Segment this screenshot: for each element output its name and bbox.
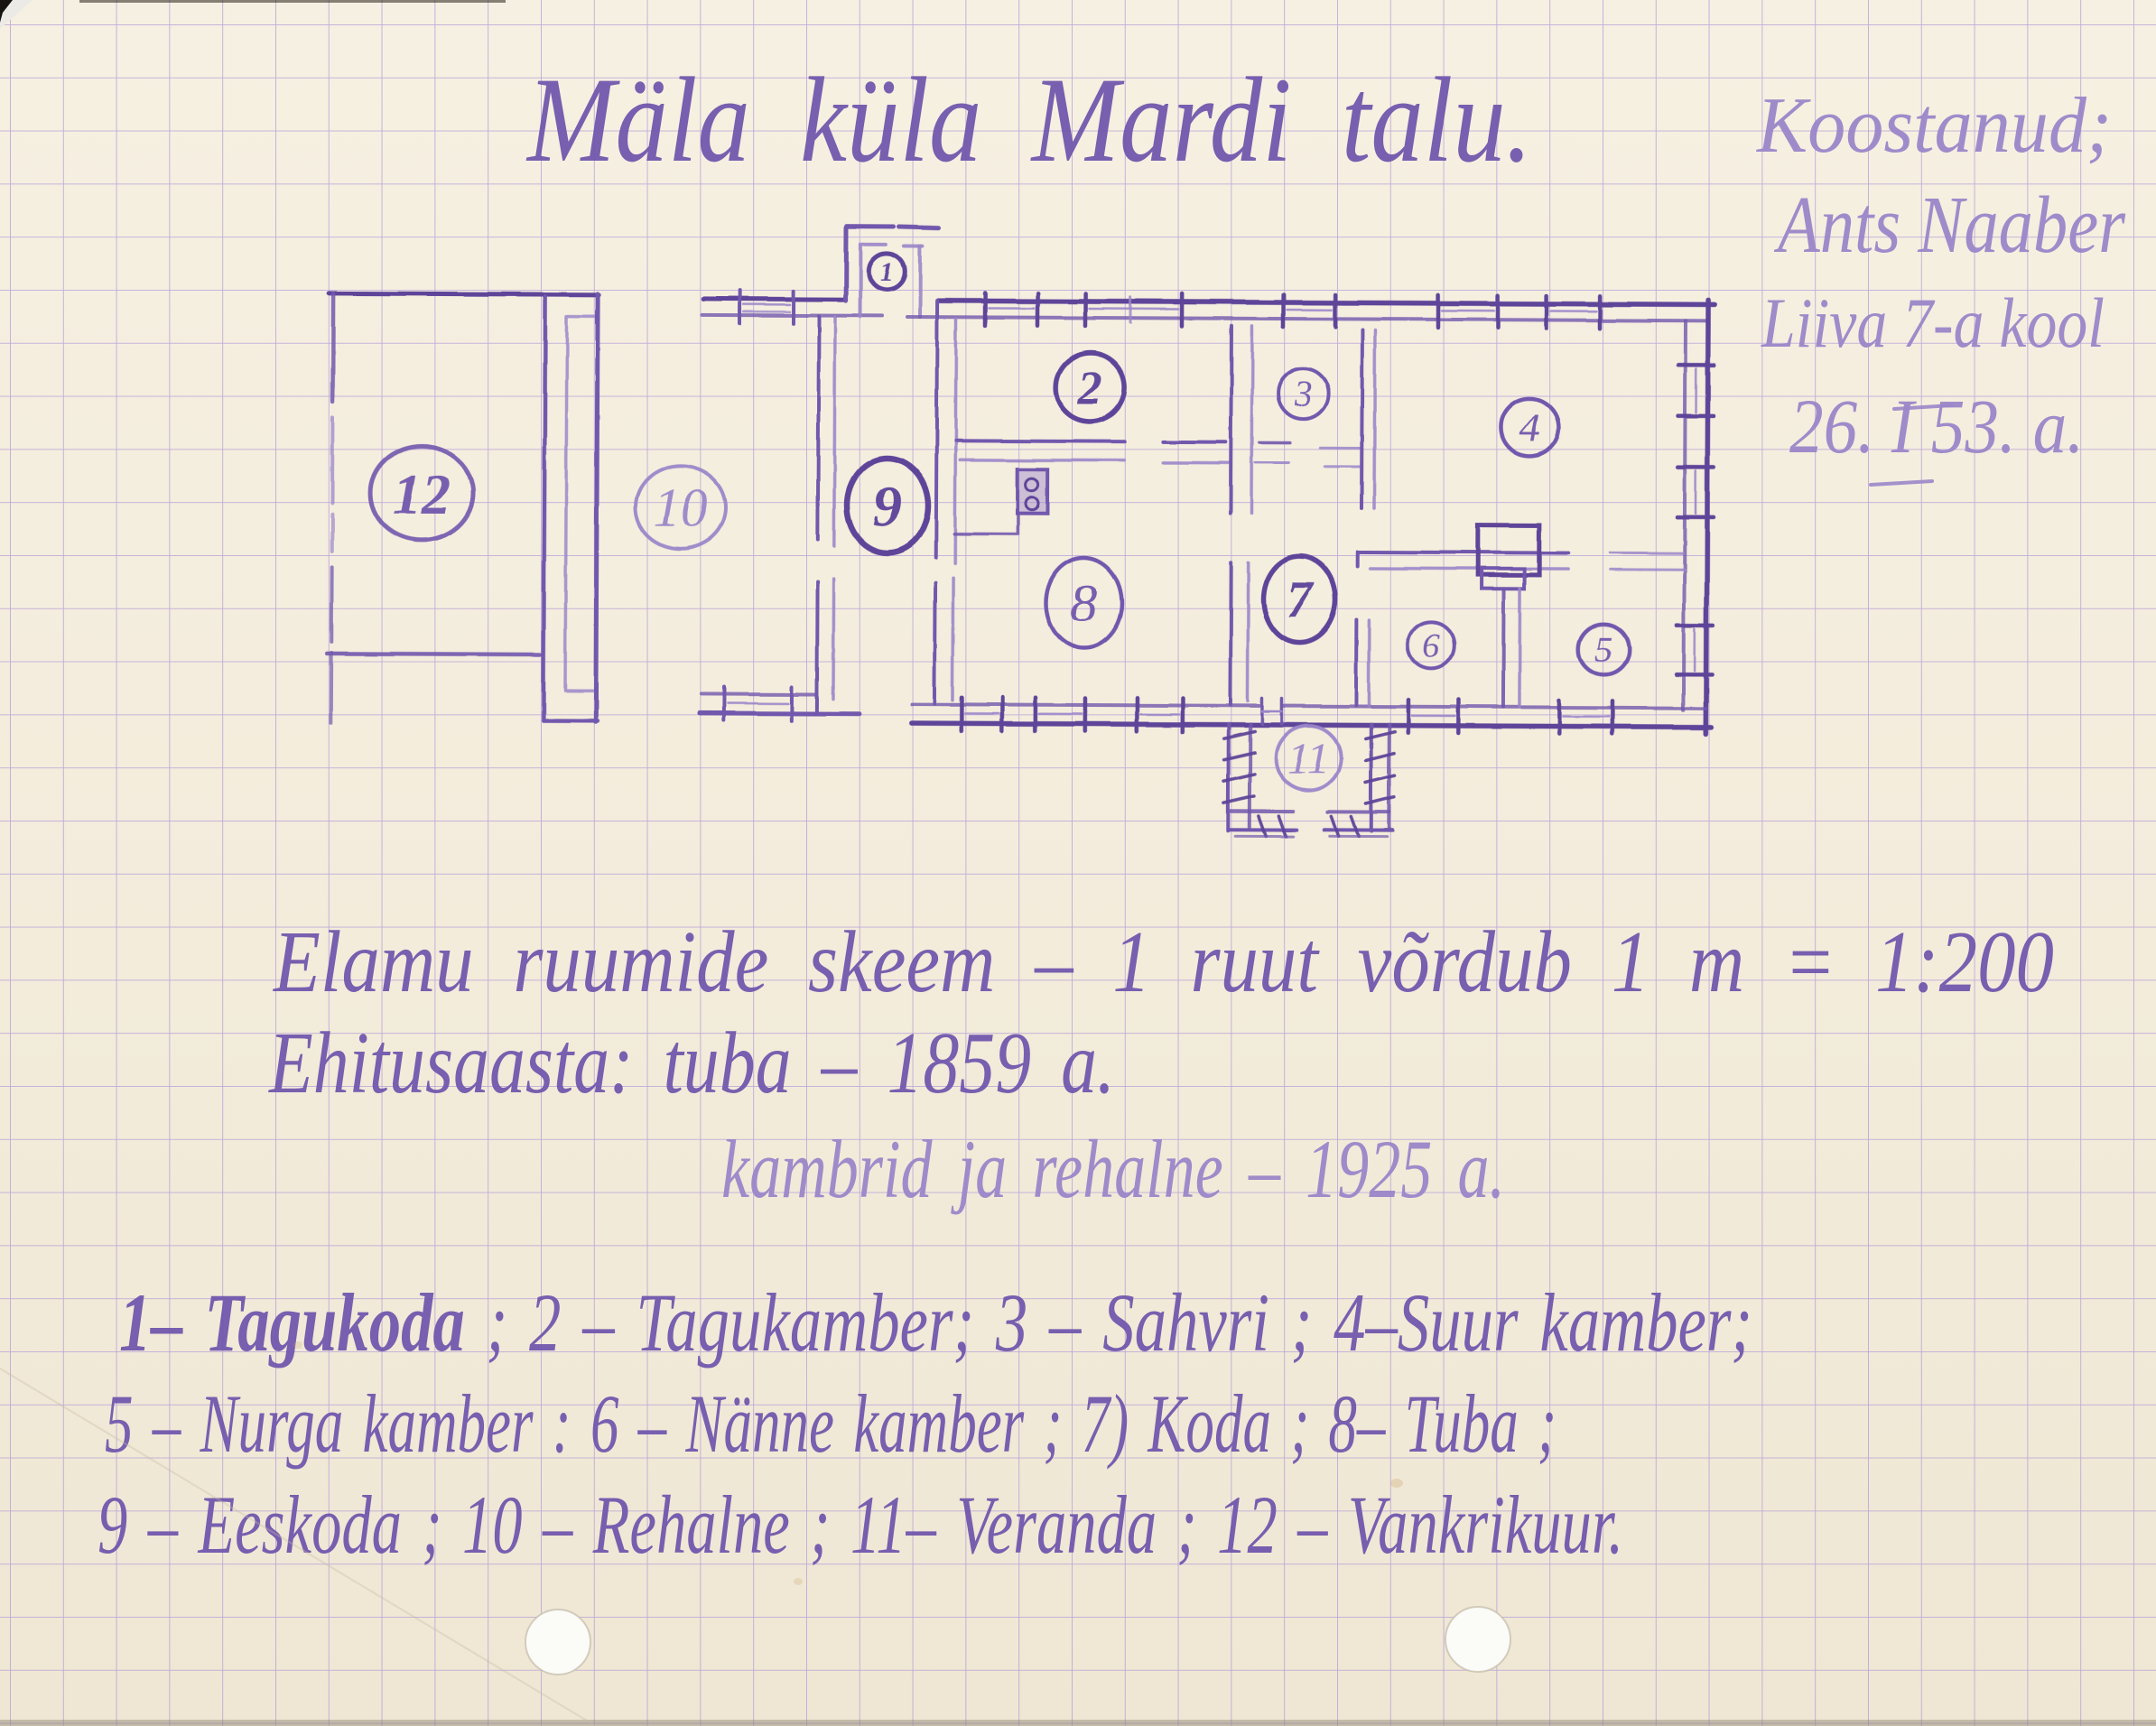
svg-text:10: 10	[654, 478, 708, 537]
svg-text:Mäla küla Mardi talu.: Mäla küla Mardi talu.	[525, 53, 1532, 188]
svg-text:1– Tagukoda ; 2 – Tagukamber;: 1– Tagukoda ; 2 – Tagukamber; 3 – Sahvri…	[119, 1276, 1752, 1369]
svg-text:8: 8	[1070, 573, 1097, 633]
svg-text:5: 5	[1594, 629, 1612, 670]
svg-text:12: 12	[393, 461, 451, 525]
svg-text:Koostanud;: Koostanud;	[1755, 82, 2112, 170]
svg-text:6: 6	[1423, 627, 1440, 665]
svg-text:Ants Naaber: Ants Naaber	[1774, 181, 2126, 270]
svg-text:Liiva 7-a kool: Liiva 7-a kool	[1761, 283, 2105, 362]
svg-text:11: 11	[1287, 733, 1330, 784]
svg-text:Ehitusaasta: tuba – 1859 a.: Ehitusaasta: tuba – 1859 a.	[267, 1015, 1115, 1112]
svg-text:1: 1	[880, 257, 894, 287]
svg-text:2: 2	[1077, 360, 1102, 414]
svg-text:Elamu ruumide skeem – 1 ruut v: Elamu ruumide skeem – 1 ruut võrdub 1 m …	[272, 914, 2054, 1011]
svg-text:3: 3	[1294, 374, 1313, 414]
svg-text:7: 7	[1287, 571, 1315, 629]
svg-text:9: 9	[873, 474, 902, 538]
svg-text:26. I 53. a.: 26. I 53. a.	[1789, 383, 2084, 469]
svg-text:kambrid ja rehalne – 1925 a.: kambrid ja rehalne – 1925 a.	[721, 1123, 1505, 1215]
svg-text:9 – Eeskoda ; 10 – Rehalne ; 1: 9 – Eeskoda ; 10 – Rehalne ; 11– Veranda…	[98, 1479, 1623, 1571]
svg-text:4: 4	[1519, 404, 1540, 450]
svg-text:5 – Nurga kamber : 6 – Nänne k: 5 – Nurga kamber : 6 – Nänne kamber ; 7)…	[105, 1378, 1557, 1470]
